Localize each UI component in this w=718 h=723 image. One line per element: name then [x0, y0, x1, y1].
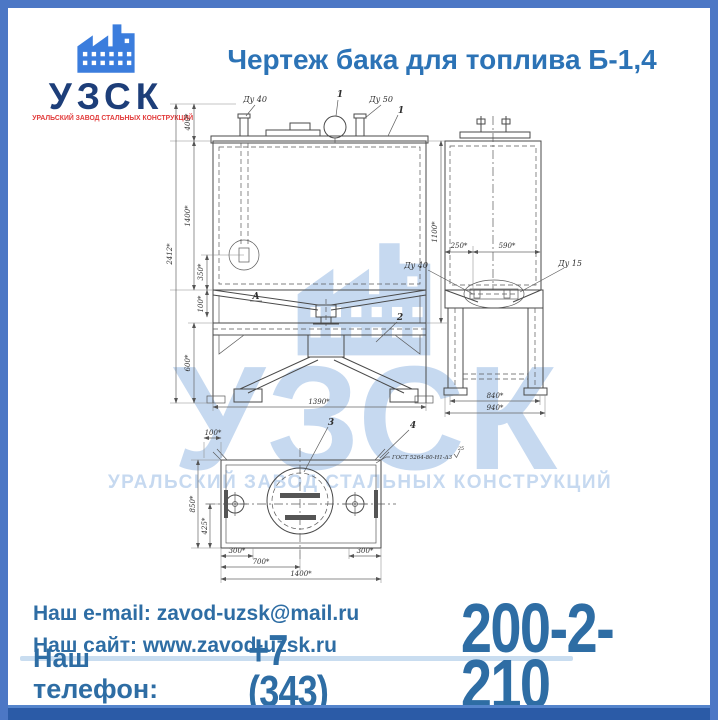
- callout-vent: 1: [337, 90, 343, 100]
- phone-code: +7 (343): [248, 631, 374, 712]
- phone-label: Наш телефон:: [33, 643, 218, 712]
- dim-side-inner: 840*: [487, 392, 504, 400]
- dim-side-right: 590*: [499, 242, 516, 250]
- valve-label: Ду 15: [557, 259, 582, 268]
- dim-side-left: 250*: [450, 242, 468, 250]
- dim-plan-left-offset: 300*: [229, 547, 246, 555]
- dim-slope: 100*: [197, 295, 205, 312]
- dim-plan-right-offset: 300*: [357, 547, 374, 555]
- page-title: Чертеж бака для топлива Б-1,4: [186, 44, 698, 76]
- weld-size: 25: [457, 446, 464, 452]
- dim-detail-offset: 350*: [197, 263, 205, 280]
- weld-note: ГОСТ 5264-80-Н1-Δ3: [391, 455, 453, 461]
- dim-top-offset: 400*: [184, 113, 192, 131]
- watermark-tagline: УРАЛЬСКИЙ ЗАВОД СТАЛЬНЫХ КОНСТРУКЦИЙ: [108, 471, 612, 493]
- drain-label: Ду 40: [403, 261, 428, 270]
- dim-front-width: 1390*: [308, 398, 330, 406]
- dim-tank-height: 1400*: [184, 205, 192, 227]
- dim-side-outer: 940*: [487, 404, 504, 412]
- dim-plan-depth: 850*: [189, 495, 197, 512]
- dim-leg-height: 600*: [184, 354, 192, 371]
- callout-manhole: 3: [328, 418, 334, 428]
- callout-corner-front: 1: [398, 106, 404, 116]
- fitting-left-label: Ду 40: [242, 95, 267, 104]
- email-line: Наш e-mail: zavod-uzsk@mail.ru: [33, 602, 359, 626]
- phone-number: 200-2-210: [461, 600, 696, 712]
- dim-total-height: 2412*: [166, 243, 174, 266]
- callout-support: 2: [396, 313, 403, 323]
- fitting-right-label: Ду 50: [368, 95, 393, 104]
- view-arrow-label: А: [251, 292, 259, 302]
- dim-plan-half: 425*: [201, 517, 209, 535]
- factory-icon: [74, 20, 138, 75]
- technical-drawing: УЗСК УРАЛЬСКИЙ ЗАВОД СТАЛЬНЫХ КОНСТРУКЦИ…: [8, 86, 718, 598]
- bottom-border-bar: [8, 705, 710, 720]
- dim-plan-notch: 100*: [205, 429, 222, 437]
- callout-corner-plan: 4: [410, 421, 416, 431]
- flyer-page: УЗСК УРАЛЬСКИЙ ЗАВОД СТАЛЬНЫХ КОНСТРУКЦИ…: [0, 0, 718, 720]
- dim-right-height: 1100*: [431, 221, 439, 243]
- dim-plan-center: 700*: [253, 558, 270, 566]
- dim-plan-width: 1400*: [290, 570, 312, 578]
